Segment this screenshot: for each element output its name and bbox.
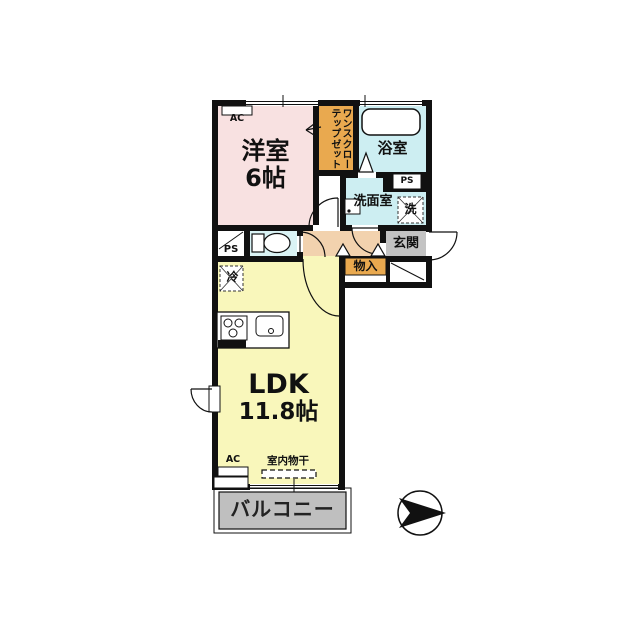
window-gap [246, 100, 318, 106]
wall-segment [339, 256, 345, 490]
western-room-name: 洋室 [218, 138, 313, 165]
room-door-gap [313, 225, 340, 231]
floor-plan-drawing [0, 0, 640, 640]
bath-label: 浴室 [359, 140, 426, 157]
ac-top-label: AC [222, 114, 252, 125]
western-room-label: 洋室 6帖 [218, 138, 313, 192]
western-room-size: 6帖 [218, 165, 313, 192]
wall-segment [378, 225, 432, 231]
counter-base [218, 340, 246, 348]
ldk-doorway-floor [303, 256, 339, 262]
drying-rail-icon [262, 470, 316, 478]
bathtub-icon [362, 109, 420, 135]
window-gap [360, 100, 422, 106]
toilet-icon [252, 234, 290, 253]
ldk-name: LDK [218, 370, 339, 400]
closet-label-line2: クローゼット [321, 139, 351, 170]
indoor-drying-label: 室内物干 [257, 456, 319, 468]
wall-segment [339, 282, 432, 288]
wall-segment [386, 258, 390, 282]
north-arrow-icon [398, 491, 446, 535]
ac-bottom-label: AC [218, 455, 248, 466]
closet-label: ワンステップ クローゼット [320, 108, 352, 169]
fridge-label: 冷 [221, 271, 244, 284]
storage-label: 物入 [345, 260, 386, 273]
balcony-label: バルコニー [219, 498, 346, 520]
dead-space-diagonal [391, 263, 424, 280]
entrance-label: 玄関 [386, 237, 426, 252]
ldk-label: LDK 11.8帖 [218, 370, 339, 426]
washroom-label: 洗面室 [347, 195, 399, 210]
wall-segment [353, 100, 359, 172]
entrance-door-arc [429, 232, 457, 260]
small-window-box [214, 477, 248, 488]
wall-segment [340, 225, 352, 231]
entrance-door-gap [426, 232, 432, 256]
closet-label-line1: ワンステップ [321, 108, 351, 139]
wall-segment [212, 256, 303, 262]
bath-door-gap [358, 172, 376, 178]
floor-plan: 洋室 6帖 ワンステップ クローゼット 浴室 PS 洗面室 洗 玄関 物入 PS… [0, 0, 640, 640]
ps-top-label: PS [393, 176, 421, 186]
washer-label: 洗 [398, 203, 423, 216]
wall-segment [212, 225, 313, 231]
ldk-size: 11.8帖 [218, 400, 339, 426]
ac-unit-bottom [218, 467, 248, 476]
kitchen-counter [217, 312, 289, 348]
ps-left-label: PS [216, 244, 246, 255]
